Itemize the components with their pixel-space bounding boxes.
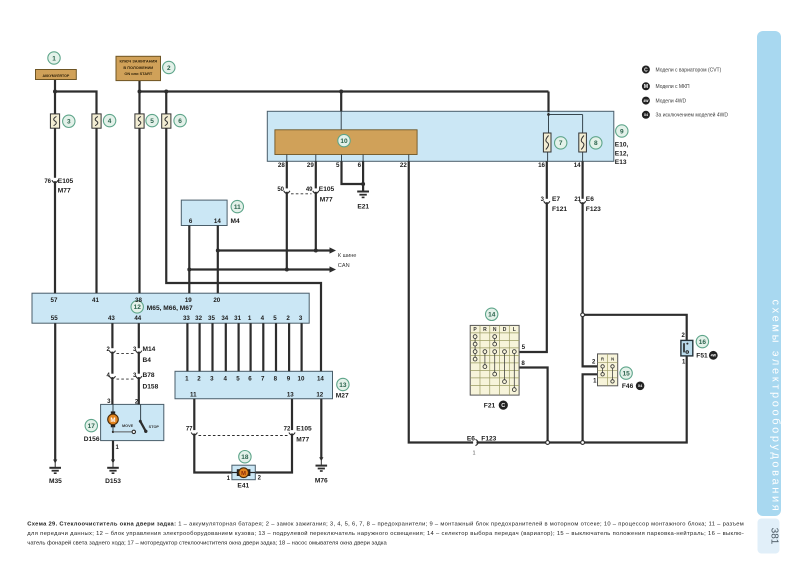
svg-text:E105: E105 — [319, 186, 335, 193]
svg-text:M65, M66, M67: M65, M66, M67 — [147, 305, 193, 312]
svg-text:D156: D156 — [84, 436, 100, 443]
svg-text:8: 8 — [594, 140, 598, 147]
svg-text:77: 77 — [186, 427, 193, 433]
svg-text:X4: X4 — [644, 113, 648, 117]
svg-text:9: 9 — [287, 376, 291, 383]
svg-text:33: 33 — [183, 315, 190, 322]
svg-text:32: 32 — [195, 315, 202, 322]
svg-text:1: 1 — [472, 451, 475, 457]
svg-text:7: 7 — [559, 140, 563, 147]
svg-text:M77: M77 — [58, 187, 71, 194]
svg-text:29: 29 — [307, 162, 314, 169]
svg-text:M35: M35 — [49, 478, 62, 485]
svg-text:5: 5 — [273, 315, 277, 322]
svg-text:44: 44 — [134, 315, 141, 322]
svg-text:5: 5 — [150, 118, 154, 125]
svg-text:14: 14 — [574, 162, 581, 169]
svg-text:F121: F121 — [552, 206, 567, 213]
svg-text:11: 11 — [190, 391, 197, 398]
svg-text:41: 41 — [92, 297, 99, 304]
svg-text:L: L — [513, 327, 516, 333]
svg-text:E21: E21 — [357, 203, 369, 210]
svg-text:1: 1 — [52, 55, 56, 62]
svg-text:E12,: E12, — [615, 150, 629, 157]
svg-text:10: 10 — [340, 138, 348, 145]
svg-text:STOP: STOP — [149, 425, 160, 429]
svg-text:38: 38 — [135, 297, 142, 304]
svg-text:E105: E105 — [296, 426, 312, 433]
svg-text:чатель фонарей света заднего х: чатель фонарей света заднего хода; 17 – … — [27, 539, 387, 546]
svg-text:КЛЮЧ ЗАЖИГАНИЯ: КЛЮЧ ЗАЖИГАНИЯ — [119, 59, 157, 64]
svg-text:F123: F123 — [481, 435, 496, 442]
svg-text:49: 49 — [306, 187, 313, 193]
svg-text:12: 12 — [134, 304, 142, 311]
svg-text:B78: B78 — [143, 372, 155, 379]
svg-text:M77: M77 — [296, 437, 309, 444]
svg-text:1: 1 — [185, 376, 189, 383]
svg-text:E41: E41 — [237, 482, 249, 489]
svg-text:E6: E6 — [467, 435, 475, 442]
svg-text:F46: F46 — [622, 383, 634, 390]
svg-text:E7: E7 — [552, 196, 560, 203]
svg-text:F123: F123 — [586, 206, 601, 213]
svg-text:N: N — [493, 327, 497, 333]
svg-text:R: R — [483, 327, 487, 333]
svg-text:76: 76 — [44, 179, 51, 185]
svg-text:АККУМУЛЯТОР: АККУМУЛЯТОР — [42, 74, 69, 78]
svg-text:E10,: E10, — [615, 142, 629, 149]
svg-text:F21: F21 — [484, 402, 496, 409]
svg-text:28: 28 — [278, 162, 285, 169]
svg-text:3: 3 — [67, 119, 71, 126]
svg-text:M: M — [241, 471, 246, 477]
svg-text:8: 8 — [521, 360, 525, 367]
svg-text:ON или START: ON или START — [124, 71, 153, 76]
svg-text:4W: 4W — [643, 99, 649, 103]
svg-text:6: 6 — [178, 118, 182, 125]
svg-text:MOVE: MOVE — [122, 424, 134, 428]
svg-text:18: 18 — [241, 454, 249, 461]
svg-text:3: 3 — [299, 315, 303, 322]
svg-text:16: 16 — [538, 162, 545, 169]
svg-text:6: 6 — [189, 218, 193, 225]
svg-text:16: 16 — [699, 339, 707, 346]
svg-text:M27: M27 — [336, 392, 349, 399]
svg-text:E6: E6 — [586, 196, 594, 203]
svg-text:10: 10 — [298, 376, 305, 383]
svg-text:14: 14 — [317, 376, 324, 383]
svg-text:B4: B4 — [143, 357, 152, 364]
svg-text:M: M — [644, 84, 648, 90]
svg-text:M14: M14 — [143, 346, 156, 353]
svg-text:Модели с МКП: Модели с МКП — [656, 84, 690, 90]
svg-text:2: 2 — [286, 315, 290, 322]
svg-text:20: 20 — [213, 297, 220, 304]
svg-text:Схема 29. Стеклоочиститель окн: Схема 29. Стеклоочиститель окна двери за… — [27, 521, 743, 528]
svg-text:17: 17 — [88, 423, 96, 430]
svg-text:8: 8 — [274, 376, 278, 383]
svg-text:6: 6 — [358, 162, 362, 169]
svg-text:схемы электрооборудования: схемы электрооборудования — [770, 300, 782, 513]
svg-text:CAN: CAN — [338, 263, 350, 269]
svg-text:M77: M77 — [320, 197, 333, 204]
svg-text:43: 43 — [108, 315, 115, 322]
svg-text:3: 3 — [210, 376, 214, 383]
svg-text:5: 5 — [236, 376, 240, 383]
svg-text:13: 13 — [287, 391, 294, 398]
svg-text:4: 4 — [261, 315, 265, 322]
svg-text:D: D — [503, 327, 507, 333]
svg-text:57: 57 — [51, 297, 58, 304]
svg-text:13: 13 — [339, 382, 347, 389]
svg-text:14: 14 — [214, 218, 221, 225]
svg-text:C: C — [644, 67, 648, 73]
svg-text:35: 35 — [208, 315, 215, 322]
svg-text:D158: D158 — [143, 384, 159, 391]
svg-text:C: C — [501, 403, 505, 409]
svg-text:За исключением моделей 4WD: За исключением моделей 4WD — [656, 112, 729, 119]
svg-text:для передачи данных; 12 – блок: для передачи данных; 12 – блок управлени… — [27, 530, 744, 537]
svg-text:2: 2 — [167, 65, 171, 72]
svg-text:4: 4 — [108, 118, 112, 125]
svg-text:19: 19 — [185, 297, 192, 304]
svg-text:15: 15 — [622, 370, 630, 377]
svg-text:14: 14 — [488, 312, 496, 319]
svg-text:D153: D153 — [105, 478, 121, 485]
svg-text:M76: M76 — [315, 477, 328, 484]
svg-text:21: 21 — [574, 197, 581, 203]
svg-text:55: 55 — [51, 315, 58, 322]
svg-text:E13: E13 — [615, 159, 627, 166]
svg-text:12: 12 — [316, 391, 323, 398]
svg-text:N: N — [611, 356, 614, 361]
svg-text:50: 50 — [277, 187, 284, 193]
svg-text:2: 2 — [197, 376, 201, 383]
svg-text:6: 6 — [248, 376, 252, 383]
svg-text:F51: F51 — [696, 352, 708, 359]
svg-text:9: 9 — [620, 128, 624, 135]
svg-text:M4: M4 — [231, 218, 240, 225]
svg-text:4W: 4W — [711, 354, 717, 358]
svg-text:72: 72 — [284, 427, 291, 433]
svg-text:1: 1 — [248, 315, 252, 322]
svg-text:Модели 4WD: Модели 4WD — [656, 98, 687, 104]
svg-text:5: 5 — [522, 344, 526, 351]
svg-text:К шине: К шине — [338, 253, 357, 259]
svg-text:22: 22 — [400, 162, 407, 169]
svg-text:4: 4 — [223, 376, 227, 383]
svg-text:M: M — [110, 417, 115, 424]
svg-text:5: 5 — [336, 162, 340, 169]
svg-text:34: 34 — [221, 315, 228, 322]
svg-text:11: 11 — [234, 204, 241, 211]
svg-text:X4: X4 — [638, 384, 642, 388]
svg-text:Модели с вариатором (CVT): Модели с вариатором (CVT) — [656, 67, 722, 73]
svg-text:381: 381 — [769, 528, 780, 545]
svg-text:E105: E105 — [58, 178, 74, 185]
svg-text:В ПОЛОЖЕНИИ: В ПОЛОЖЕНИИ — [123, 65, 153, 70]
svg-text:R: R — [601, 356, 604, 361]
svg-text:31: 31 — [234, 315, 241, 322]
svg-text:7: 7 — [261, 376, 265, 383]
